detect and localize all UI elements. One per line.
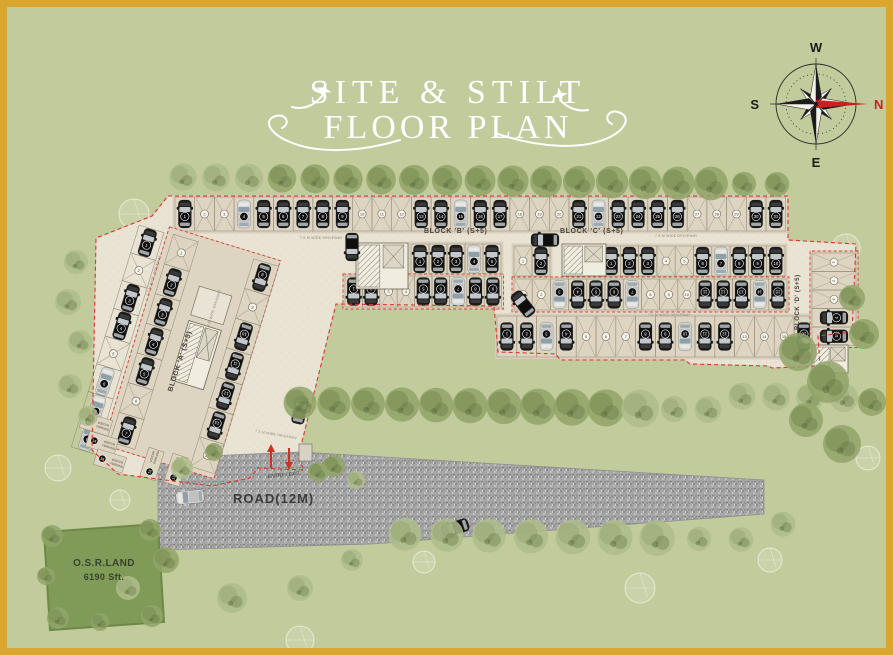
stall-number: 25	[655, 214, 660, 219]
tree-icon	[732, 172, 756, 196]
tree-icon	[858, 388, 886, 416]
stall-number: 12	[722, 331, 727, 336]
osr-label-line2: 6190 Sft.	[84, 572, 125, 582]
tree-icon	[389, 518, 422, 551]
car-icon: 8	[315, 200, 331, 228]
sketch-tree-icon	[758, 548, 782, 572]
car-icon: 4	[236, 200, 252, 228]
tree-icon	[58, 374, 82, 398]
driveway-label: 7.5 M WIDE DRIVEWAY	[655, 234, 698, 238]
car-icon: 17	[492, 200, 508, 228]
car-icon: 2	[430, 245, 446, 273]
car-icon: 4	[570, 281, 586, 309]
driveway-label: 7.5 M WIDE DRIVEWAY	[300, 236, 343, 240]
tree-icon	[47, 607, 69, 629]
tree-icon	[171, 457, 193, 479]
tree-icon	[694, 167, 728, 201]
tree-icon	[486, 388, 522, 424]
car-icon: 24	[630, 200, 646, 228]
stall-number: 15	[775, 289, 780, 294]
stall-number: 22	[596, 214, 601, 219]
tree-icon	[563, 166, 595, 198]
car-icon: 5	[588, 281, 604, 309]
tree-icon	[385, 387, 419, 421]
tree-icon	[596, 166, 628, 198]
tree-icon	[639, 520, 675, 556]
tree-icon	[687, 527, 711, 551]
sketch-tree-icon	[625, 573, 655, 603]
tree-icon	[287, 575, 313, 601]
tree-icon	[235, 164, 263, 192]
stall-number: 14	[762, 334, 767, 339]
car-icon: 8	[637, 323, 653, 351]
road-label: ROAD(12M)	[233, 491, 314, 506]
car-icon: 5	[255, 200, 271, 228]
stall-number: 16	[478, 214, 483, 219]
osr-label-line1: O.S.R.LAND	[73, 558, 135, 569]
tree-icon	[770, 512, 795, 537]
tree-icon	[37, 567, 55, 585]
tree-icon	[554, 389, 591, 426]
stall-number: 12	[399, 212, 404, 217]
stair-core	[356, 243, 408, 289]
tree-icon	[520, 389, 556, 425]
stall-number: 17	[498, 214, 503, 219]
tree-icon	[629, 166, 662, 199]
car-icon: 13	[413, 200, 429, 228]
car-icon: 9	[485, 278, 501, 306]
tree-icon	[807, 361, 849, 403]
car-icon: 6	[606, 281, 622, 309]
tree-icon	[839, 285, 865, 311]
stall-number: 10	[682, 331, 687, 336]
car-icon: 6	[694, 247, 710, 275]
tree-icon	[351, 387, 385, 421]
car-icon: 4	[466, 245, 482, 273]
stall-number: 20	[557, 212, 562, 217]
tree-icon	[530, 166, 562, 198]
tree-icon	[661, 396, 687, 422]
tree-icon	[556, 520, 591, 555]
stall-number: 24	[636, 214, 641, 219]
car-icon: 7	[295, 200, 311, 228]
car-icon: 1	[177, 200, 193, 228]
car-icon: 3	[551, 281, 567, 309]
tree-icon	[823, 425, 861, 463]
sketch-tree-icon	[110, 490, 130, 510]
title-line2: FLOOR PLAN	[324, 109, 573, 146]
stall-number: 10	[360, 212, 365, 217]
tree-icon	[430, 518, 463, 551]
tree-icon	[597, 520, 632, 555]
tree-icon	[661, 166, 694, 199]
car-icon: 9	[749, 247, 765, 275]
tree-icon	[217, 583, 247, 613]
compass-west: W	[810, 40, 823, 55]
tree-icon	[268, 164, 297, 193]
car-icon: 15	[452, 200, 468, 228]
stall-number: 29	[734, 212, 739, 217]
car-icon: 26	[669, 200, 685, 228]
car-icon: 12	[717, 323, 733, 351]
stall-number: 30	[754, 214, 759, 219]
tree-icon	[762, 383, 790, 411]
compass-east: E	[812, 155, 821, 170]
car-icon: 25	[649, 200, 665, 228]
security-booth	[299, 444, 312, 461]
car-icon: 3	[538, 323, 554, 351]
car-icon: 22	[590, 200, 606, 228]
car-icon: 5	[484, 245, 500, 273]
stall-number: 26	[675, 214, 680, 219]
car-icon: 8	[467, 278, 483, 306]
tree-icon	[728, 383, 755, 410]
stall-number: 11	[702, 331, 707, 336]
tree-icon	[452, 388, 487, 423]
stall-number: 14	[439, 214, 444, 219]
car-icon: 7	[713, 247, 729, 275]
tree-icon	[465, 165, 496, 196]
tree-icon	[419, 388, 454, 423]
car-icon: 9	[334, 200, 350, 228]
tree-icon	[587, 389, 624, 426]
stall-number: 10	[774, 261, 779, 266]
tree-icon	[789, 403, 823, 437]
tree-icon	[139, 519, 161, 541]
tree-icon	[68, 330, 92, 354]
stall-number: 13	[742, 334, 747, 339]
tree-icon	[202, 164, 230, 192]
stall-number: 21	[577, 214, 582, 219]
car-icon	[344, 233, 360, 261]
car-icon: 4	[820, 310, 848, 326]
block-c-label: BLOCK 'C' (S+5)	[560, 228, 623, 235]
car-icon: 11	[697, 281, 713, 309]
sketch-tree-icon	[413, 551, 435, 573]
parking-row: 123456789101112131415	[512, 277, 789, 312]
tree-icon	[621, 390, 659, 428]
car-icon: 6	[275, 200, 291, 228]
car-icon: 23	[610, 200, 626, 228]
tree-icon	[169, 163, 196, 190]
site-plan-page: 1234567891011121314151617181920212223242…	[0, 0, 893, 655]
car-icon: 21	[571, 200, 587, 228]
tree-icon	[308, 462, 328, 482]
car-icon: 13	[733, 281, 749, 309]
car-icon: 16	[472, 200, 488, 228]
parking-row: 12345	[409, 242, 503, 276]
car-icon: 2	[621, 247, 637, 275]
tree-icon	[779, 333, 817, 371]
car-icon: 31	[768, 200, 784, 228]
block-d-label: BLOCK 'D' (S+5)	[795, 274, 801, 330]
tree-icon	[64, 250, 88, 274]
car-icon: 5	[820, 328, 848, 344]
compass-south: S	[750, 97, 759, 112]
car-icon: 11	[697, 323, 713, 351]
car-icon: 30	[748, 200, 764, 228]
site-plan-canvas: 1234567891011121314151617181920212223242…	[0, 0, 893, 655]
car-icon: 4	[558, 323, 574, 351]
car-icon	[531, 232, 559, 248]
car-icon: 10	[768, 247, 784, 275]
stall-number: 18	[518, 212, 523, 217]
title-line1: SITE & STILT	[310, 74, 587, 111]
car-icon: 1	[499, 323, 515, 351]
car-icon: 15	[770, 281, 786, 309]
tree-icon	[347, 471, 365, 489]
stall-number: 13	[739, 289, 744, 294]
tree-icon	[333, 164, 362, 193]
car-icon: 9	[657, 323, 673, 351]
stall-number: 31	[774, 214, 779, 219]
tree-icon	[341, 549, 363, 571]
parking-row: 12345678910	[600, 244, 787, 278]
stall-number: 15	[458, 214, 463, 219]
stall-number: 28	[715, 212, 720, 217]
car-icon: 10	[677, 323, 693, 351]
stall-number: 14	[757, 289, 762, 294]
tree-icon	[472, 519, 506, 553]
car-icon: 3	[448, 245, 464, 273]
tree-icon	[366, 165, 396, 195]
stair-core	[562, 244, 606, 276]
tree-icon	[141, 605, 163, 627]
tree-icon	[78, 406, 98, 426]
car-icon: 12	[715, 281, 731, 309]
stall-number: 13	[419, 214, 424, 219]
tree-icon	[317, 387, 350, 420]
car-icon: 14	[752, 281, 768, 309]
tree-icon	[514, 519, 548, 553]
car-icon: 2	[519, 323, 535, 351]
car-icon: 6	[433, 278, 449, 306]
tree-icon	[497, 165, 528, 196]
tree-icon	[695, 396, 722, 423]
tree-icon	[205, 443, 223, 461]
car-icon: 1	[412, 245, 428, 273]
driveway-label: 7.5 M WIDE DRIVEWAY	[648, 313, 691, 317]
block-b-label: BLOCK 'B' (S+5)	[424, 228, 487, 235]
car-icon: 2	[533, 247, 549, 275]
stall-number: 11	[702, 289, 707, 294]
stall-number: 27	[695, 212, 700, 217]
stall-number: 10	[685, 292, 690, 297]
car-icon: 3	[640, 247, 656, 275]
tree-icon	[91, 613, 109, 631]
tree-icon	[849, 319, 879, 349]
tree-icon	[41, 525, 63, 547]
parking-row: 12	[512, 244, 552, 278]
tree-icon	[284, 386, 317, 419]
stall-number: 23	[616, 214, 621, 219]
tree-icon	[432, 165, 462, 195]
car-icon: 8	[731, 247, 747, 275]
sketch-tree-icon	[45, 455, 71, 481]
tree-icon	[765, 172, 789, 196]
tree-icon	[55, 289, 81, 315]
car-icon: 7	[450, 278, 466, 306]
car-icon: 5	[415, 278, 431, 306]
tree-icon	[153, 547, 179, 573]
tree-icon	[729, 527, 754, 552]
tree-icon	[301, 164, 330, 193]
car-icon: 7	[624, 281, 640, 309]
tree-icon	[399, 165, 429, 195]
compass-north: N	[874, 97, 883, 112]
stall-number: 19	[537, 212, 542, 217]
stall-number: 12	[720, 289, 725, 294]
car-icon: 14	[433, 200, 449, 228]
